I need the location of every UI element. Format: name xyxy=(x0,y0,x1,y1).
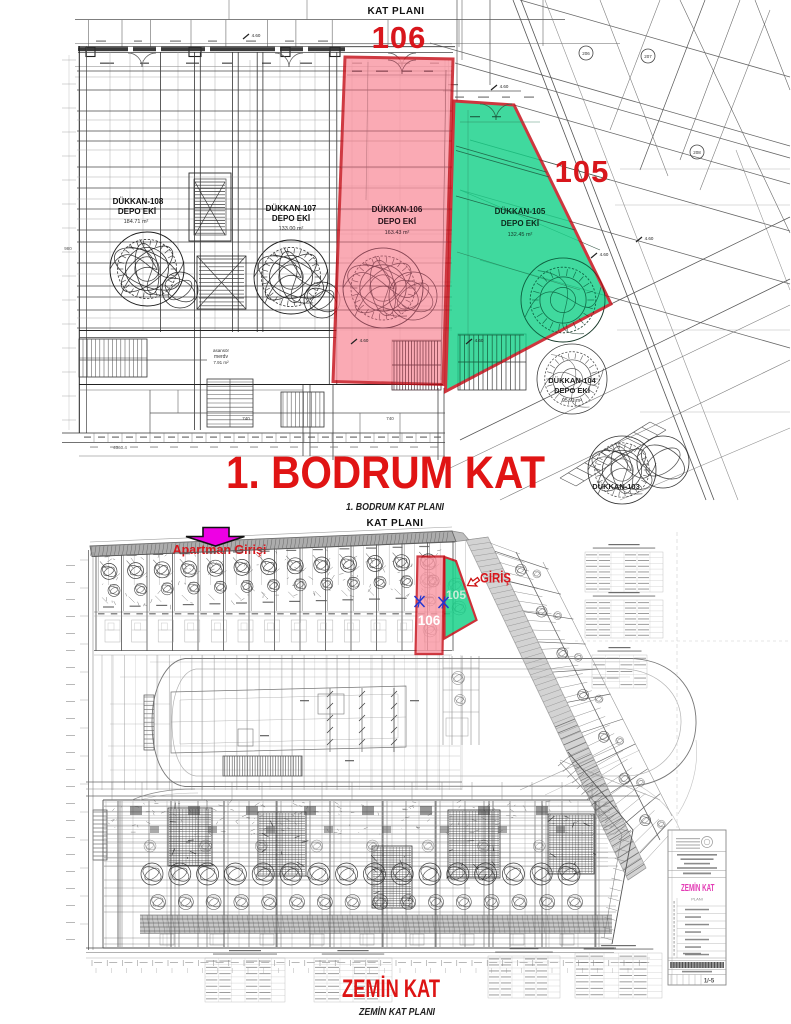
svg-text:DEPO EKİ: DEPO EKİ xyxy=(554,386,590,395)
svg-text:105: 105 xyxy=(555,154,610,189)
svg-text:DEPO EKİ: DEPO EKİ xyxy=(118,207,156,216)
svg-text:DÜKKAN-103: DÜKKAN-103 xyxy=(592,482,640,491)
svg-text:163.43 m²: 163.43 m² xyxy=(385,230,410,236)
svg-text:PLANI: PLANI xyxy=(691,897,703,902)
svg-text:DÜKKAN-107: DÜKKAN-107 xyxy=(266,204,317,213)
svg-text:740: 740 xyxy=(242,416,250,421)
svg-text:740: 740 xyxy=(386,416,394,421)
svg-text:4.60: 4.60 xyxy=(600,252,609,257)
svg-text:KAT PLANI: KAT PLANI xyxy=(367,6,424,17)
svg-text:DÜKKAN-104: DÜKKAN-104 xyxy=(548,376,596,385)
svg-text:4.60: 4.60 xyxy=(475,338,484,343)
svg-text:105: 105 xyxy=(446,588,466,602)
svg-text:1. BODRUM KAT PLANI: 1. BODRUM KAT PLANI xyxy=(346,502,444,513)
svg-text:106: 106 xyxy=(418,613,441,628)
svg-text:DÜKKAN-105: DÜKKAN-105 xyxy=(495,207,546,216)
svg-text:4.60: 4.60 xyxy=(360,338,369,343)
svg-text:208: 208 xyxy=(693,150,701,155)
svg-text:DEPO EKİ: DEPO EKİ xyxy=(272,214,310,223)
svg-text:1/-5: 1/-5 xyxy=(704,979,715,985)
svg-text:ZEMİN KAT PLANI: ZEMİN KAT PLANI xyxy=(358,1005,436,1018)
svg-text:206: 206 xyxy=(582,51,590,56)
svg-text:ZEMİN KAT: ZEMİN KAT xyxy=(342,975,440,1003)
svg-text:asansör: asansör xyxy=(213,348,230,353)
svg-text:KAT PLANI: KAT PLANI xyxy=(366,518,423,529)
svg-text:DÜKKAN-108: DÜKKAN-108 xyxy=(113,197,164,206)
svg-text:1. BODRUM KAT: 1. BODRUM KAT xyxy=(226,447,545,498)
svg-text:4.60: 4.60 xyxy=(500,84,509,89)
svg-text:7.91 m²: 7.91 m² xyxy=(213,360,229,365)
svg-text:DÜKKAN-106: DÜKKAN-106 xyxy=(372,205,423,214)
svg-text:GİRİŞ: GİRİŞ xyxy=(480,570,511,586)
svg-text:95.91 m²: 95.91 m² xyxy=(562,398,582,404)
svg-text:ZEMİN KAT: ZEMİN KAT xyxy=(681,881,715,894)
svg-text:DEPO EKİ: DEPO EKİ xyxy=(378,217,416,226)
svg-text:207: 207 xyxy=(644,54,652,59)
svg-text:132.45 m²: 132.45 m² xyxy=(508,232,533,238)
svg-text:DEPO EKİ: DEPO EKİ xyxy=(501,219,539,228)
svg-text:184.71 m²: 184.71 m² xyxy=(124,219,149,225)
svg-text:4.60: 4.60 xyxy=(645,236,654,241)
svg-text:980: 980 xyxy=(64,246,72,251)
svg-text:106: 106 xyxy=(372,20,427,55)
svg-text:133.00 m²: 133.00 m² xyxy=(279,226,304,232)
svg-text:4.60: 4.60 xyxy=(252,33,261,38)
